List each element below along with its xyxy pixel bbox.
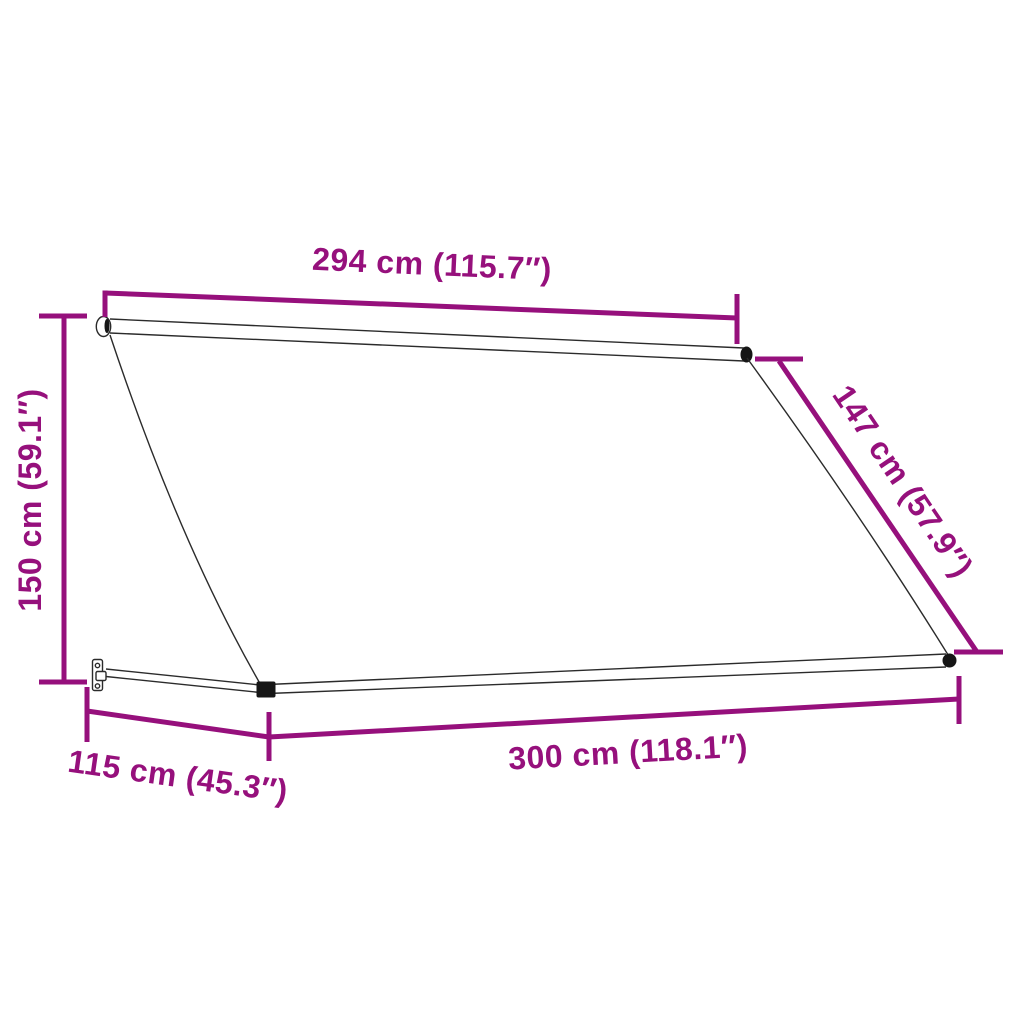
- front-bar: [268, 654, 956, 694]
- roller-right-end-cap: [741, 347, 752, 362]
- roller-tube-bottom-edge: [110, 333, 744, 361]
- dim-line-fabric-width: [105, 293, 737, 318]
- dim-label-frame-height: 150 cm (59.1″): [12, 388, 48, 611]
- dim-line-projection: [87, 711, 269, 737]
- drop-arm: [106, 669, 275, 697]
- arm-top-edge: [106, 669, 260, 685]
- dimension-fabric-drop: 147 cm (57.9″): [755, 359, 1003, 652]
- dimension-diagram: 294 cm (115.7″) 150 cm (59.1″) 147 cm (5…: [0, 0, 1024, 1024]
- awning-drawing: [93, 317, 957, 698]
- awning-fabric: [110, 335, 950, 687]
- arm-elbow-joint: [257, 682, 275, 697]
- roller-left-cap-slot: [105, 320, 109, 333]
- roller-tube: [96, 317, 752, 363]
- dim-label-fabric-width: 294 cm (115.7″): [311, 241, 552, 287]
- fabric-left-edge: [110, 335, 262, 687]
- arm-bottom-edge: [106, 677, 260, 693]
- dimension-projection: 115 cm (45.3″): [66, 687, 290, 809]
- dim-label-total-width: 300 cm (118.1″): [507, 727, 749, 776]
- dimension-fabric-width: 294 cm (115.7″): [105, 241, 737, 344]
- dimension-total-width: 300 cm (118.1″): [269, 676, 959, 777]
- dimension-frame-height: 150 cm (59.1″): [12, 316, 87, 682]
- wall-bracket: [93, 660, 107, 691]
- dim-line-fabric-drop: [779, 361, 977, 652]
- bracket-hinge-knob: [96, 672, 106, 681]
- dim-label-fabric-drop: 147 cm (57.9″): [826, 378, 981, 583]
- dim-label-projection: 115 cm (45.3″): [66, 743, 290, 809]
- awning-dimension-figure: 294 cm (115.7″) 150 cm (59.1″) 147 cm (5…: [0, 0, 1024, 1024]
- dim-line-total-width: [269, 699, 959, 737]
- front-bar-right-end-cap: [943, 654, 956, 667]
- roller-tube-top-edge: [110, 319, 744, 348]
